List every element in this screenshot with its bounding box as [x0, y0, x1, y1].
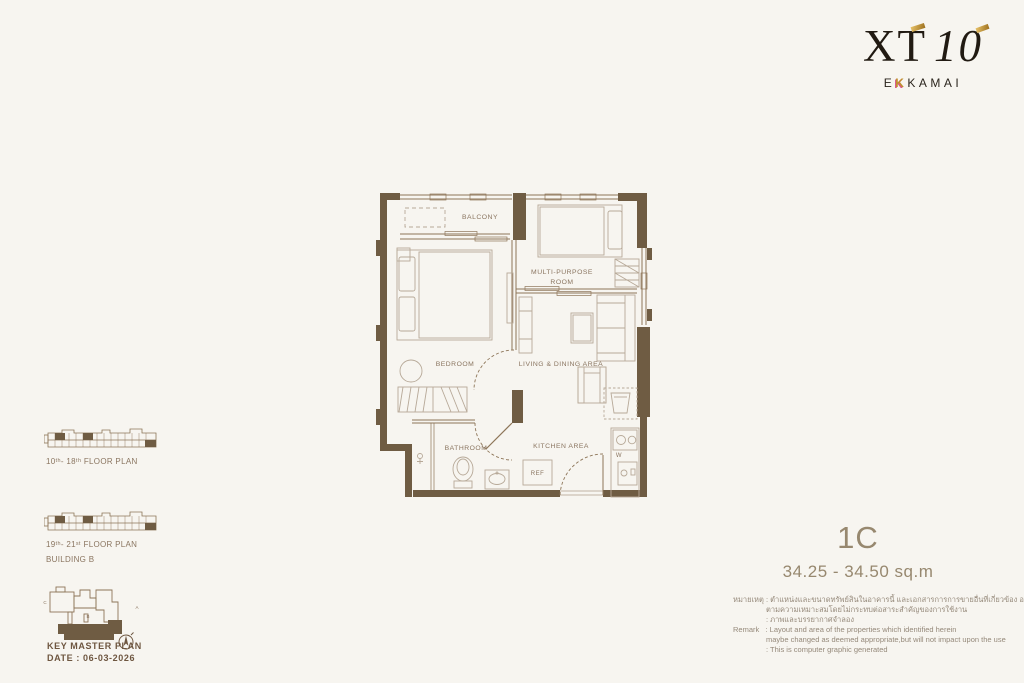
- building-label: BUILDING B: [46, 555, 94, 564]
- bedroom-label: BEDROOM: [436, 361, 475, 368]
- remark-line-en-3: : This is computer graphic generated: [733, 645, 1013, 655]
- master-plan-letters: C B A: [43, 600, 138, 619]
- brand-sub-kamai: KAMAI: [907, 76, 962, 90]
- mpr-bed: [538, 205, 622, 257]
- tv-console: [519, 297, 532, 353]
- stove: [613, 430, 637, 450]
- plan-furniture: [397, 205, 639, 497]
- floor-plan-range-label-2: 19ᵗʰ- 21ˢᵗ FLOOR PLAN: [46, 540, 137, 549]
- building-a-letter: A: [135, 605, 138, 610]
- sofa: [597, 295, 635, 361]
- balcony-label: BALCONY: [462, 214, 498, 221]
- room-labels: BALCONY MULTI-PURPOSE ROOM BEDROOM LIVIN…: [436, 214, 622, 477]
- brochure-page: XT10 EKKAMAI: [0, 0, 1024, 683]
- brand-sub-e: E: [884, 76, 896, 90]
- floor-plan-range-label-1: 10ᵗʰ- 18ᵗʰ FLOOR PLAN: [46, 457, 138, 466]
- washing-machine: [618, 462, 637, 485]
- remark-line-en-1: Remark : Layout and area of the properti…: [733, 625, 1013, 635]
- unit-code: 1C: [738, 520, 978, 556]
- key-master-plan-title: KEY MASTER PLAN: [47, 641, 142, 651]
- washer-label: W: [616, 453, 622, 459]
- building-b-letter: B: [86, 614, 89, 619]
- brand-wordmark: XT10: [848, 24, 998, 69]
- bathroom-label: BATHROOM: [445, 445, 488, 452]
- remark-block: หมายเหตุ : ตำแหน่งและขนาดทรัพย์สินในอาคา…: [733, 595, 1013, 655]
- mpr-wardrobe: [615, 259, 639, 287]
- kitchen-label: KITCHEN AREA: [533, 443, 589, 450]
- remark-line-thai-1: หมายเหตุ : ตำแหน่งและขนาดทรัพย์สินในอาคา…: [733, 595, 1013, 605]
- dining-stool: [604, 388, 637, 419]
- unit-floor-plan: BALCONY MULTI-PURPOSE ROOM BEDROOM LIVIN…: [375, 185, 655, 507]
- shower-head-icon: [417, 454, 423, 465]
- brand-subtitle: EKKAMAI: [848, 76, 998, 90]
- bathroom-sink: [485, 470, 509, 489]
- unit-area: 34.25 - 34.50 sq.m: [738, 562, 978, 582]
- unit-info: 1C 34.25 - 34.50 sq.m: [738, 520, 978, 582]
- key-plan-floors-10-18: [44, 425, 164, 457]
- building-c-letter: C: [43, 600, 47, 605]
- balcony-ac-unit: [405, 208, 445, 227]
- ref-label: REF: [531, 471, 545, 477]
- remark-line-en-2: maybe changed as deemed appropriate,but …: [733, 635, 1013, 645]
- remark-line-thai-3: : ภาพและบรรยากาศจำลอง: [733, 615, 1013, 625]
- brand-sub-k-gold: K: [895, 76, 907, 90]
- multi-purpose-label-2: ROOM: [550, 279, 573, 286]
- living-dining-label: LIVING & DINING AREA: [519, 361, 603, 368]
- bedroom-wardrobe: [398, 387, 467, 412]
- master-plan-outlines: [50, 587, 118, 624]
- dining-chair: [578, 367, 606, 403]
- master-plan-date: DATE : 06-03-2026: [47, 653, 135, 663]
- key-plan-floors-19-21: [44, 508, 164, 540]
- bedroom-bed: [397, 250, 492, 340]
- multi-purpose-label-1: MULTI-PURPOSE: [531, 269, 593, 276]
- entrance-door-arc: [560, 454, 603, 497]
- bedroom-door-arc: [474, 350, 514, 390]
- bedroom-stool: [400, 360, 422, 382]
- brand-logo: XT10 EKKAMAI: [848, 24, 998, 90]
- toilet: [453, 457, 473, 488]
- remark-line-thai-2: ตามความเหมาะสมโดยไม่กระทบต่อสาระสำคัญของ…: [733, 605, 1013, 615]
- coffee-table: [571, 313, 593, 343]
